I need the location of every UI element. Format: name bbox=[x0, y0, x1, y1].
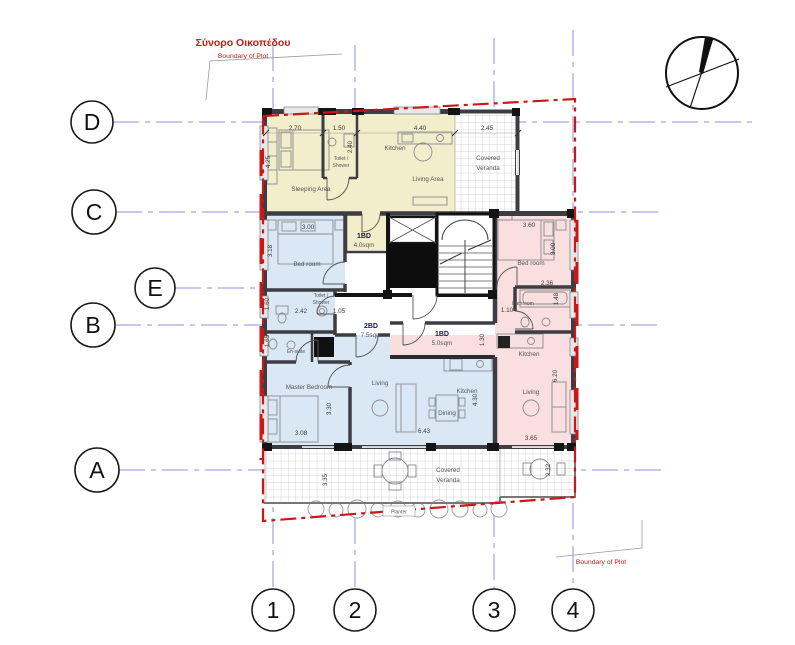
dim: 1.30 bbox=[479, 333, 486, 346]
unit-area: 4.0sqm bbox=[354, 242, 375, 249]
room-label: Dining bbox=[438, 410, 456, 417]
grid-bubble-d: D bbox=[84, 109, 101, 135]
room-label: Living bbox=[523, 389, 540, 396]
grid-bubble-e: E bbox=[147, 275, 162, 301]
dim: 4.40 bbox=[414, 125, 427, 132]
grid-bubble-3: 3 bbox=[488, 597, 501, 623]
boundary-label-english-bottom: Boundary of Plot bbox=[576, 559, 626, 566]
room-label: Living Area bbox=[412, 176, 444, 183]
dim: 1.60 bbox=[264, 297, 271, 310]
dim: 6.20 bbox=[552, 369, 559, 382]
dim: 4.25 bbox=[265, 155, 272, 168]
dim: 3.00 bbox=[550, 242, 557, 255]
dim: 2.32 bbox=[545, 463, 552, 476]
dim: 1.05 bbox=[333, 308, 346, 315]
room-label: Kitchen bbox=[384, 145, 406, 152]
dim: 1.48 bbox=[553, 292, 560, 305]
dim: 3.18 bbox=[267, 244, 274, 257]
dim: 3.35 bbox=[322, 473, 329, 486]
grid-bubble-b: B bbox=[85, 312, 100, 338]
room-label: Bed room bbox=[517, 260, 544, 267]
dim: 2.42 bbox=[295, 308, 308, 315]
room-label: Kitchen bbox=[518, 351, 540, 358]
room-label: Sleeping Area bbox=[291, 186, 331, 193]
room-label: En-suite bbox=[287, 349, 306, 355]
room-label: Veranda bbox=[436, 477, 460, 484]
room-label: Shower bbox=[333, 163, 350, 169]
room-label: Bed room bbox=[293, 261, 320, 268]
grid-bubble-1: 1 bbox=[267, 597, 280, 623]
room-label: Covered bbox=[436, 467, 460, 474]
grid-bubble-c: C bbox=[86, 199, 103, 225]
floor-plan-canvas: Σύνορο Οικοπέδου Boundary of Plot Bounda… bbox=[0, 0, 795, 645]
floor-plan-drawing: Σύνορο Οικοπέδου Boundary of Plot Bounda… bbox=[0, 0, 795, 645]
planter-label: Planter bbox=[391, 510, 407, 516]
unit-label: 1BD bbox=[357, 233, 371, 240]
dim: 3.00 bbox=[302, 224, 315, 231]
grid-bubble-a: A bbox=[89, 457, 105, 483]
shaft-block bbox=[388, 244, 437, 288]
dim: 6.43 bbox=[418, 428, 431, 435]
boundary-label-greek: Σύνορο Οικοπέδου bbox=[196, 37, 291, 49]
room-label: Master Bedroom bbox=[286, 384, 333, 391]
north-arrow-icon bbox=[666, 37, 739, 109]
unit-area: 5.0sqm bbox=[432, 340, 453, 347]
room-label: Covered bbox=[476, 155, 500, 162]
dim: 3.65 bbox=[525, 435, 538, 442]
dim: 3.08 bbox=[295, 430, 308, 437]
room-label: Veranda bbox=[476, 165, 500, 172]
boundary-label-english-top: Boundary of Plot bbox=[218, 53, 268, 60]
grid-bubble-2: 2 bbox=[349, 597, 362, 623]
dim: 2.70 bbox=[289, 125, 302, 132]
room-label: Shower bbox=[313, 300, 330, 306]
dim: 1.10 bbox=[501, 307, 514, 314]
dim: 3.30 bbox=[326, 402, 333, 415]
room-label: Bathroom bbox=[512, 301, 534, 307]
room-label: Toilet / bbox=[314, 293, 329, 299]
unit-label: 2BD bbox=[364, 323, 378, 330]
unit-label: 1BD bbox=[435, 331, 449, 338]
dim: 2.45 bbox=[481, 125, 494, 132]
dim: 2.36 bbox=[541, 280, 554, 287]
dim: 1.50 bbox=[333, 125, 346, 132]
room-label: Living bbox=[372, 380, 389, 387]
grid-bubble-4: 4 bbox=[567, 597, 580, 623]
unit-area: 7.5sqm bbox=[361, 332, 382, 339]
dim: 1.65 bbox=[264, 334, 271, 347]
dim: 3.60 bbox=[523, 222, 536, 229]
room-label: Toilet / bbox=[334, 156, 349, 162]
dim: 4.30 bbox=[472, 393, 479, 406]
dim: 2.40 bbox=[347, 140, 354, 153]
